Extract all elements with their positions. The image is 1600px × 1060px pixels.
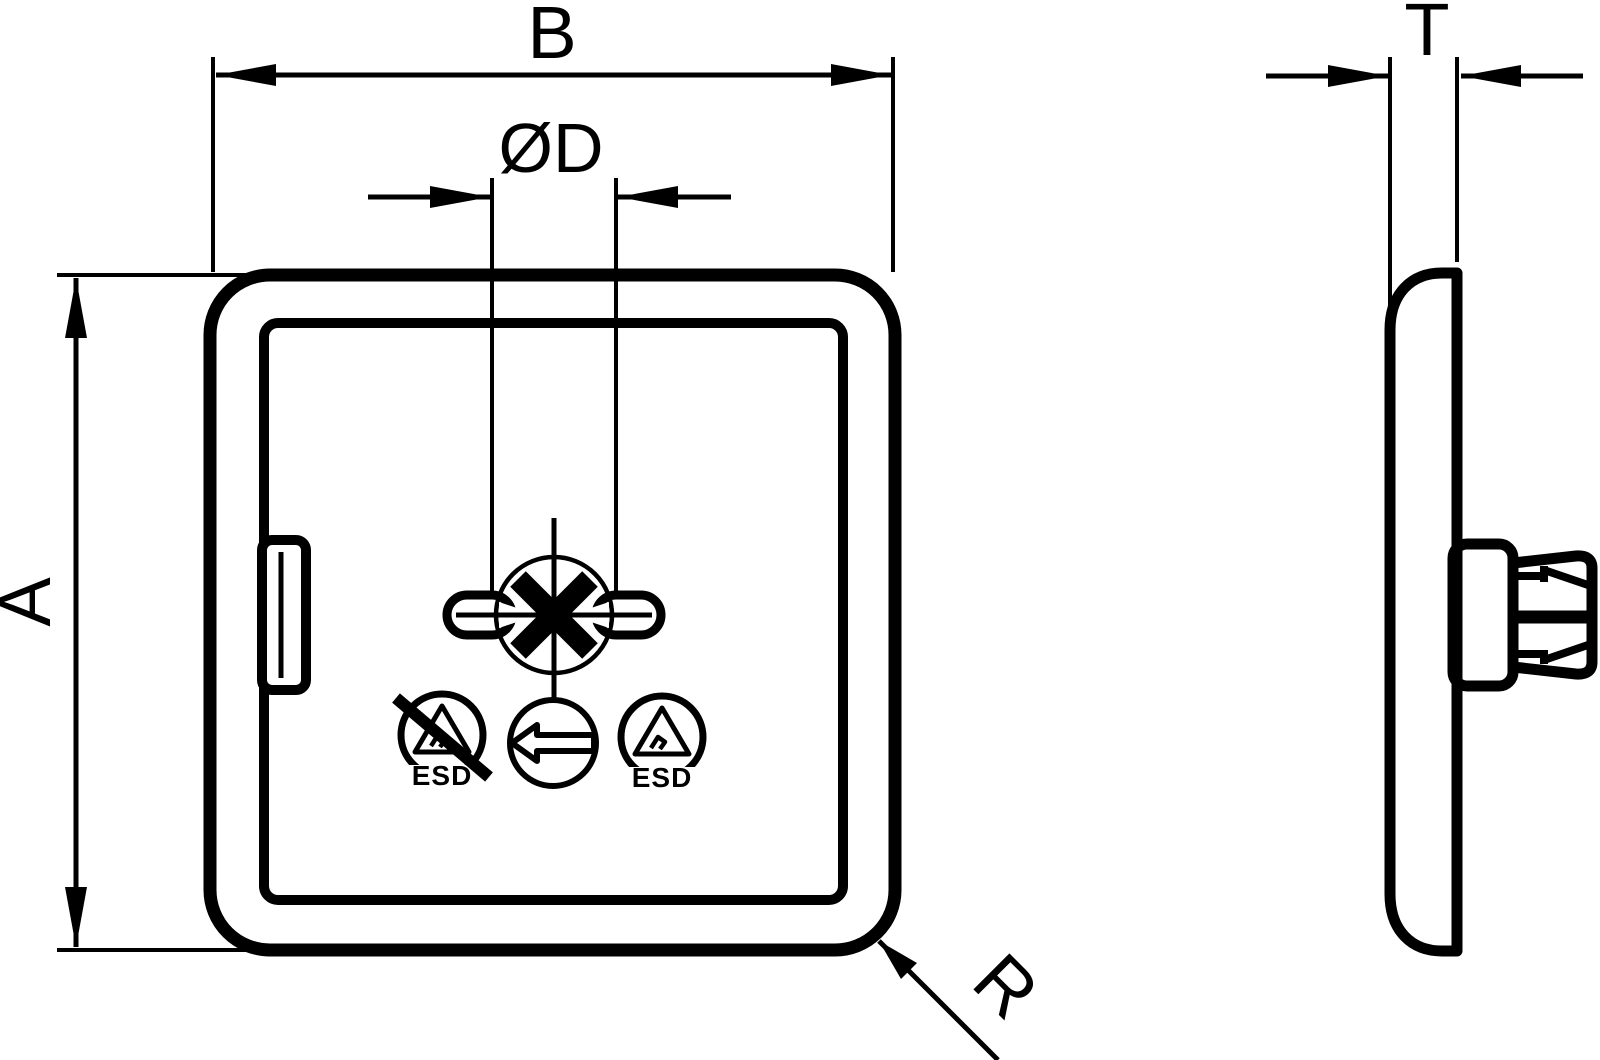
- arrowhead-right: [618, 186, 678, 208]
- dimension-d-label: ØD: [499, 109, 604, 187]
- dimension-d: ØD: [368, 109, 731, 208]
- radius-callout: R: [879, 938, 1054, 1060]
- esd-left-text: ESD: [412, 760, 473, 791]
- mounting-knob: [1453, 273, 1592, 951]
- radius-label: R: [958, 938, 1054, 1034]
- dimension-b-label: B: [527, 0, 576, 74]
- esd-right-text: ESD: [632, 762, 693, 793]
- technical-drawing-canvas: ESD ESD: [0, 0, 1600, 1060]
- arrowhead-left: [216, 64, 276, 86]
- dimension-t-label: T: [1404, 0, 1449, 71]
- arrowhead-left: [1328, 65, 1388, 87]
- arrowhead-top: [65, 278, 87, 338]
- drawing-svg: ESD ESD: [0, 0, 1600, 1060]
- arrowhead-right: [1461, 65, 1521, 87]
- side-body: [1390, 273, 1457, 951]
- arrowhead-bottom: [65, 887, 87, 947]
- dimension-a-label: A: [0, 577, 66, 627]
- arrowhead-right: [831, 64, 891, 86]
- latch-tab: [262, 540, 306, 690]
- arrowhead-left: [430, 186, 490, 208]
- side-view: [1390, 273, 1592, 951]
